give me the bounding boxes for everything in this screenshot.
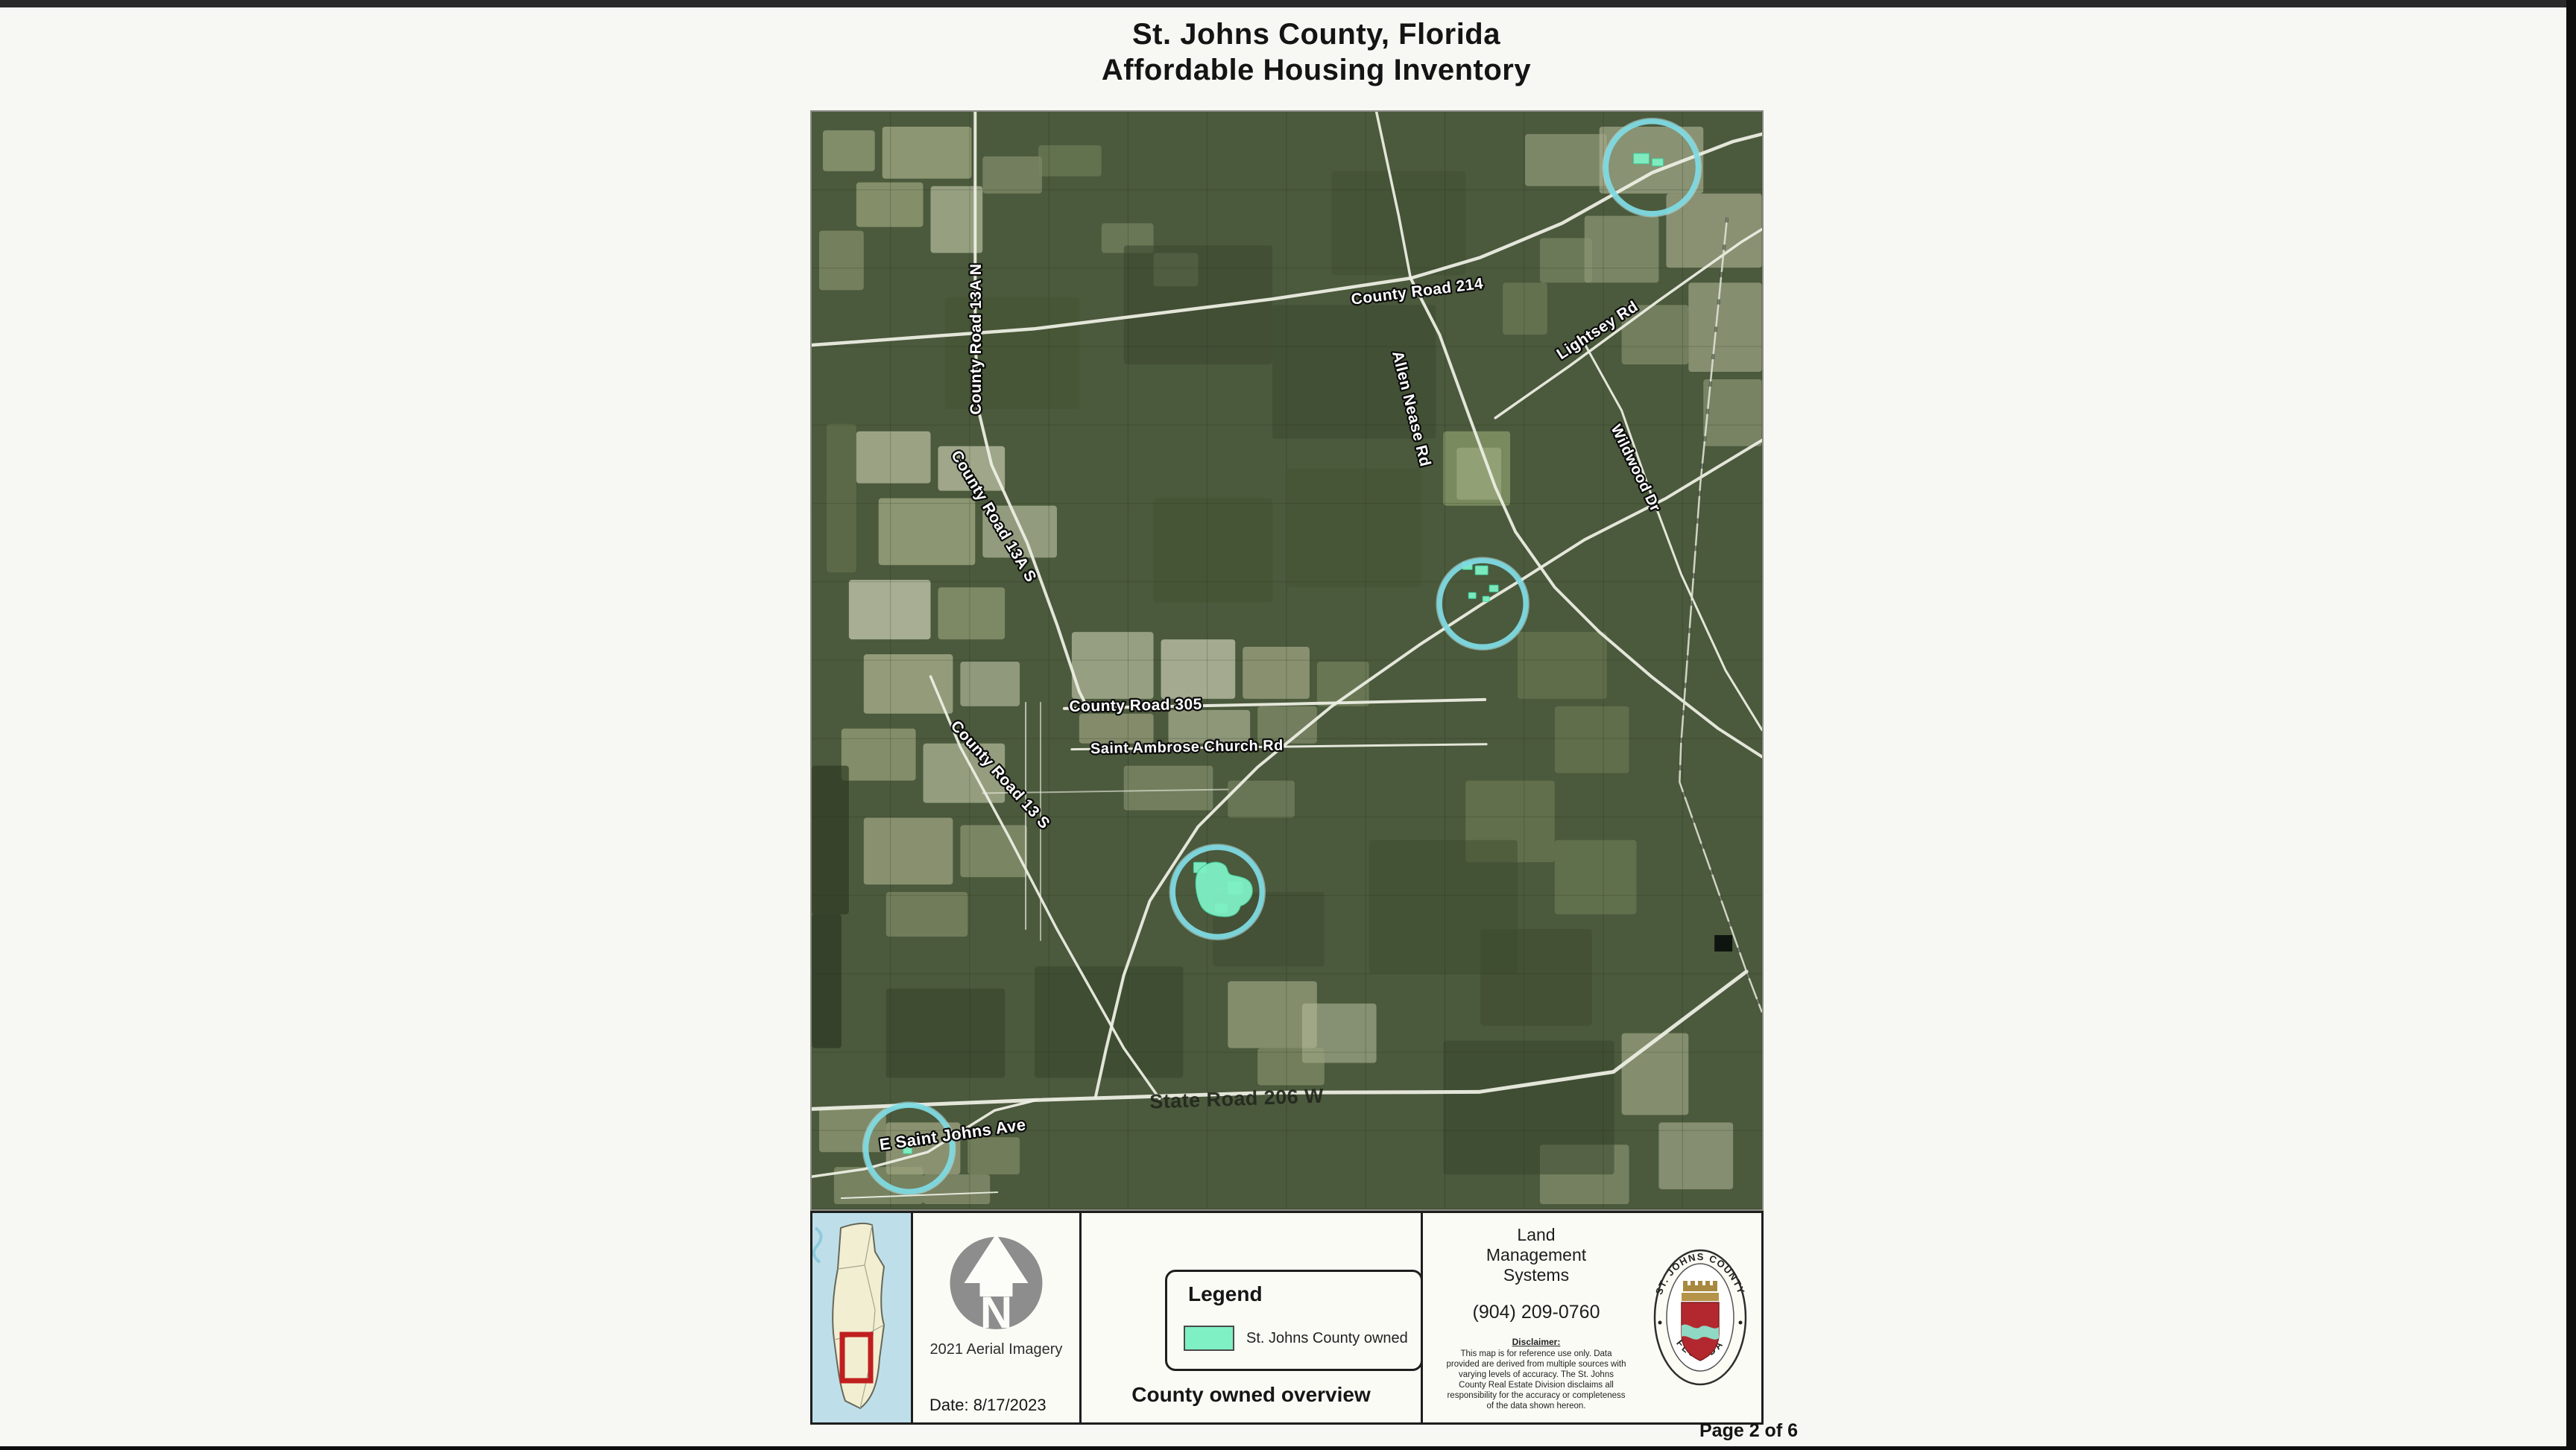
terrain-patch xyxy=(1658,1122,1733,1189)
terrain-patch xyxy=(1243,647,1310,699)
terrain-patch xyxy=(1622,1033,1689,1115)
terrain-patch xyxy=(960,662,1020,706)
terrain-patch xyxy=(1525,134,1607,186)
terrain-patch xyxy=(1443,1041,1614,1175)
terrain-patch xyxy=(842,729,916,781)
seal-crown-band xyxy=(1682,1293,1719,1301)
locator-map-cell xyxy=(812,1213,913,1422)
legend-cell: Legend St. Johns County owned County own… xyxy=(1082,1213,1423,1422)
terrain-patch xyxy=(1555,840,1637,914)
terrain-patch xyxy=(883,127,972,179)
terrain-patch xyxy=(982,156,1042,194)
terrain-patch xyxy=(924,1174,991,1204)
seal-dot-right xyxy=(1739,1320,1743,1324)
terrain-patch xyxy=(812,914,842,1048)
county-locator-map xyxy=(812,1213,911,1422)
north-arrow-letter: N xyxy=(979,1288,1011,1337)
terrain-patch xyxy=(938,587,1005,639)
page-title-line1: St. Johns County, Florida xyxy=(810,16,1822,52)
terrain-patch xyxy=(1332,171,1465,276)
north-arrow-icon: N xyxy=(913,1221,1079,1344)
terrain-patch xyxy=(1287,469,1421,588)
terrain-patch xyxy=(827,424,856,572)
terrain-patch xyxy=(1154,498,1272,603)
terrain-patch xyxy=(849,580,931,639)
legend-box: Legend St. Johns County owned xyxy=(1165,1270,1423,1371)
north-arrow-cell: N 2021 Aerial Imagery Date: 8/17/2023 xyxy=(913,1213,1082,1422)
terrain-patch xyxy=(819,231,864,291)
terrain-patch xyxy=(967,1137,1020,1174)
terrain-patch xyxy=(1161,639,1236,699)
dark-building xyxy=(1714,935,1732,952)
seal-dot-left xyxy=(1658,1320,1662,1324)
county-owned-parcel xyxy=(1468,592,1476,598)
terrain-patch xyxy=(879,498,976,566)
county-owned-parcel xyxy=(1652,159,1663,166)
terrain-patch xyxy=(812,766,849,914)
terrain-patch xyxy=(886,892,968,937)
top-letterbox-bar xyxy=(0,0,2576,7)
page-title: St. Johns County, Florida Affordable Hou… xyxy=(810,16,1822,88)
terrain-patch xyxy=(1540,238,1592,283)
bottom-letterbox-bar xyxy=(0,1446,2576,1450)
disclaimer-text: This map is for reference use only. Data… xyxy=(1446,1349,1626,1411)
terrain-patch xyxy=(1480,929,1592,1026)
legend-entry: St. Johns County owned xyxy=(1184,1326,1408,1351)
contact-block: Land Management Systems (904) 209-0760 D… xyxy=(1436,1225,1636,1411)
phone-number: (904) 209-0760 xyxy=(1436,1302,1636,1323)
terrain-patch xyxy=(1038,145,1102,177)
terrain-patch xyxy=(1072,632,1154,699)
county-owned-parcel xyxy=(1475,566,1488,574)
aerial-imagery-label: 2021 Aerial Imagery xyxy=(913,1341,1079,1358)
page-title-line2: Affordable Housing Inventory xyxy=(810,52,1822,88)
terrain-patch xyxy=(886,989,1005,1078)
terrain-patch xyxy=(1585,216,1659,283)
terrain-patch xyxy=(1555,706,1629,773)
right-letterbox-bar xyxy=(2566,0,2576,1450)
terrain-patch xyxy=(856,183,924,227)
county-owned-label: St. Johns County owned xyxy=(1246,1330,1408,1347)
page-number: Page 2 of 6 xyxy=(1652,1420,1846,1442)
map-date-label: Date: 8/17/2023 xyxy=(929,1396,1046,1415)
county-owned-parcel xyxy=(1483,596,1489,601)
map-footer: N 2021 Aerial Imagery Date: 8/17/2023 Le… xyxy=(810,1211,1764,1425)
terrain-patch xyxy=(864,654,953,714)
terrain-patch xyxy=(1703,379,1762,446)
terrain-patch xyxy=(945,297,1079,409)
document-page: St. Johns County, Florida Affordable Hou… xyxy=(0,0,2576,1450)
road-label-ambrose: Saint Ambrose Church Rd xyxy=(1090,738,1284,758)
terrain-patch xyxy=(1124,766,1213,811)
contact-cell: Land Management Systems (904) 209-0760 D… xyxy=(1423,1213,1761,1422)
aerial-map: County Road 13A NCounty Road 214Lightsey… xyxy=(812,112,1762,1209)
county-owned-parcel xyxy=(1489,585,1498,592)
terrain-patch xyxy=(819,1107,886,1152)
terrain-patch xyxy=(1257,1048,1325,1086)
org-name: Land Management Systems xyxy=(1465,1225,1607,1285)
map-panel: County Road 13A NCounty Road 214Lightsey… xyxy=(810,110,1764,1211)
locator-water-line xyxy=(814,1228,821,1262)
terrain-patch xyxy=(1688,282,1762,372)
road-label-cr305: County Road 305 xyxy=(1069,696,1202,715)
terrain-patch xyxy=(864,817,953,884)
disclaimer-title: Disclaimer: xyxy=(1436,1337,1636,1347)
terrain-patch xyxy=(1503,282,1547,335)
legend-title: Legend xyxy=(1188,1282,1263,1306)
terrain-patch xyxy=(1456,448,1501,500)
county-seal: ST. JOHNS COUNTY FLORIDA xyxy=(1644,1245,1757,1391)
terrain-patch xyxy=(823,130,875,171)
terrain-patch xyxy=(1518,632,1607,699)
terrain-patch xyxy=(856,431,931,484)
county-owned-swatch xyxy=(1184,1326,1234,1351)
map-subtitle: County owned overview xyxy=(1082,1383,1421,1407)
road-label-cr13an: County Road 13A N xyxy=(967,264,985,415)
county-owned-parcel xyxy=(1634,153,1650,164)
